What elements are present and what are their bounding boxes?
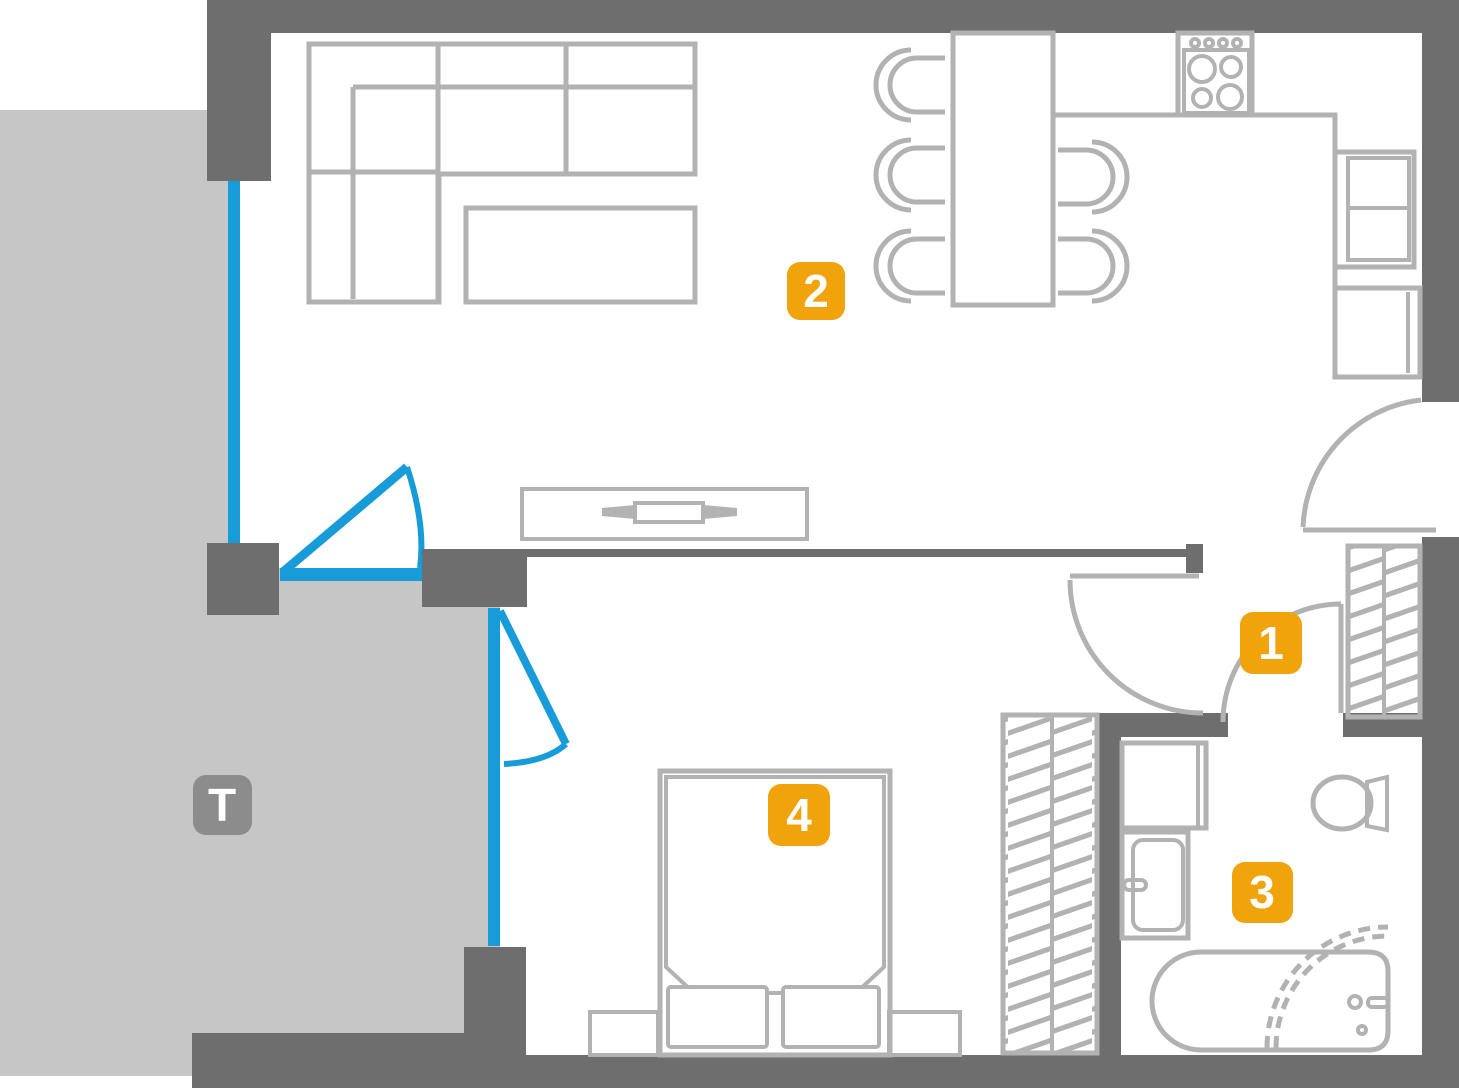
wall-right-upper: [1422, 0, 1459, 402]
bed-pillow-left: [668, 987, 767, 1047]
wardrobes: [1003, 546, 1420, 1053]
wall-bottom-left: [192, 1033, 526, 1088]
stove-burner: [1189, 56, 1215, 82]
stove-knob: [1191, 39, 1199, 47]
toilet-bowl: [1313, 777, 1371, 829]
balcony-door-sill: [280, 568, 422, 581]
tv-screen: [635, 503, 703, 522]
wall-pier-mid-left: [207, 543, 279, 615]
shower-curtain: [1267, 927, 1388, 1048]
balcony-door-bedroom-swing: [504, 744, 566, 764]
stove-knob: [1219, 39, 1227, 47]
room-badge-1-label: 1: [1258, 617, 1284, 669]
tv-wing-right: [703, 505, 737, 519]
washing-machine-drum: [1133, 840, 1183, 930]
wall-partition-end-block: [1186, 544, 1203, 573]
wall-pier-top-left: [207, 0, 271, 181]
dining-chair: [876, 50, 945, 120]
dining-chair: [876, 231, 945, 301]
living-room-furniture: [309, 44, 807, 539]
kitchen: [876, 33, 1420, 377]
room-badge-3-label: 3: [1249, 866, 1275, 918]
bathtub-spout: [1368, 998, 1388, 1007]
coffee-table: [466, 208, 695, 302]
wall-top: [207, 0, 1459, 33]
stove-burner: [1218, 85, 1242, 109]
tv-wing-left: [602, 505, 635, 519]
stove-knob: [1233, 39, 1241, 47]
room-badge-4-label: 4: [786, 789, 812, 841]
window-living: [228, 181, 240, 545]
wall-pier-center: [422, 549, 527, 607]
bathtub-drain: [1358, 1026, 1366, 1034]
balcony-door-bedroom-leaf: [500, 611, 566, 744]
dining-table: [953, 33, 1053, 305]
balcony-door-living-leaf: [283, 467, 407, 572]
window-bedroom: [488, 608, 500, 946]
room-badge-2-label: 2: [803, 265, 829, 317]
bedroom-door-swing: [1070, 580, 1203, 713]
stove-burner: [1193, 89, 1211, 107]
nightstand-right: [889, 1012, 960, 1055]
balcony-door-living-swing: [407, 467, 421, 568]
nightstand-left: [590, 1012, 658, 1055]
sink-cabinet: [1122, 743, 1206, 828]
wall-partition-living-bedroom: [527, 549, 1186, 557]
wall-hall-bathroom-left: [1097, 713, 1228, 737]
entry-door-swing: [1303, 400, 1421, 527]
floor-plan: 2 1 3 4 T: [0, 0, 1459, 1088]
tv-console: [522, 489, 807, 539]
wall-bottom: [526, 1055, 1459, 1088]
wall-right-lower: [1422, 537, 1459, 1088]
dining-chair: [876, 140, 945, 210]
dining-chair: [1058, 231, 1127, 301]
stove-knob: [1205, 39, 1213, 47]
wall-bedroom-bathroom: [1097, 713, 1121, 1055]
dining-chair: [1058, 142, 1127, 212]
bed-pillow-right: [783, 987, 879, 1047]
terrace-badge-label: T: [208, 779, 236, 831]
bathtub-faucet: [1349, 996, 1361, 1008]
bathtub: [1152, 952, 1388, 1050]
stove-burner: [1221, 57, 1241, 77]
